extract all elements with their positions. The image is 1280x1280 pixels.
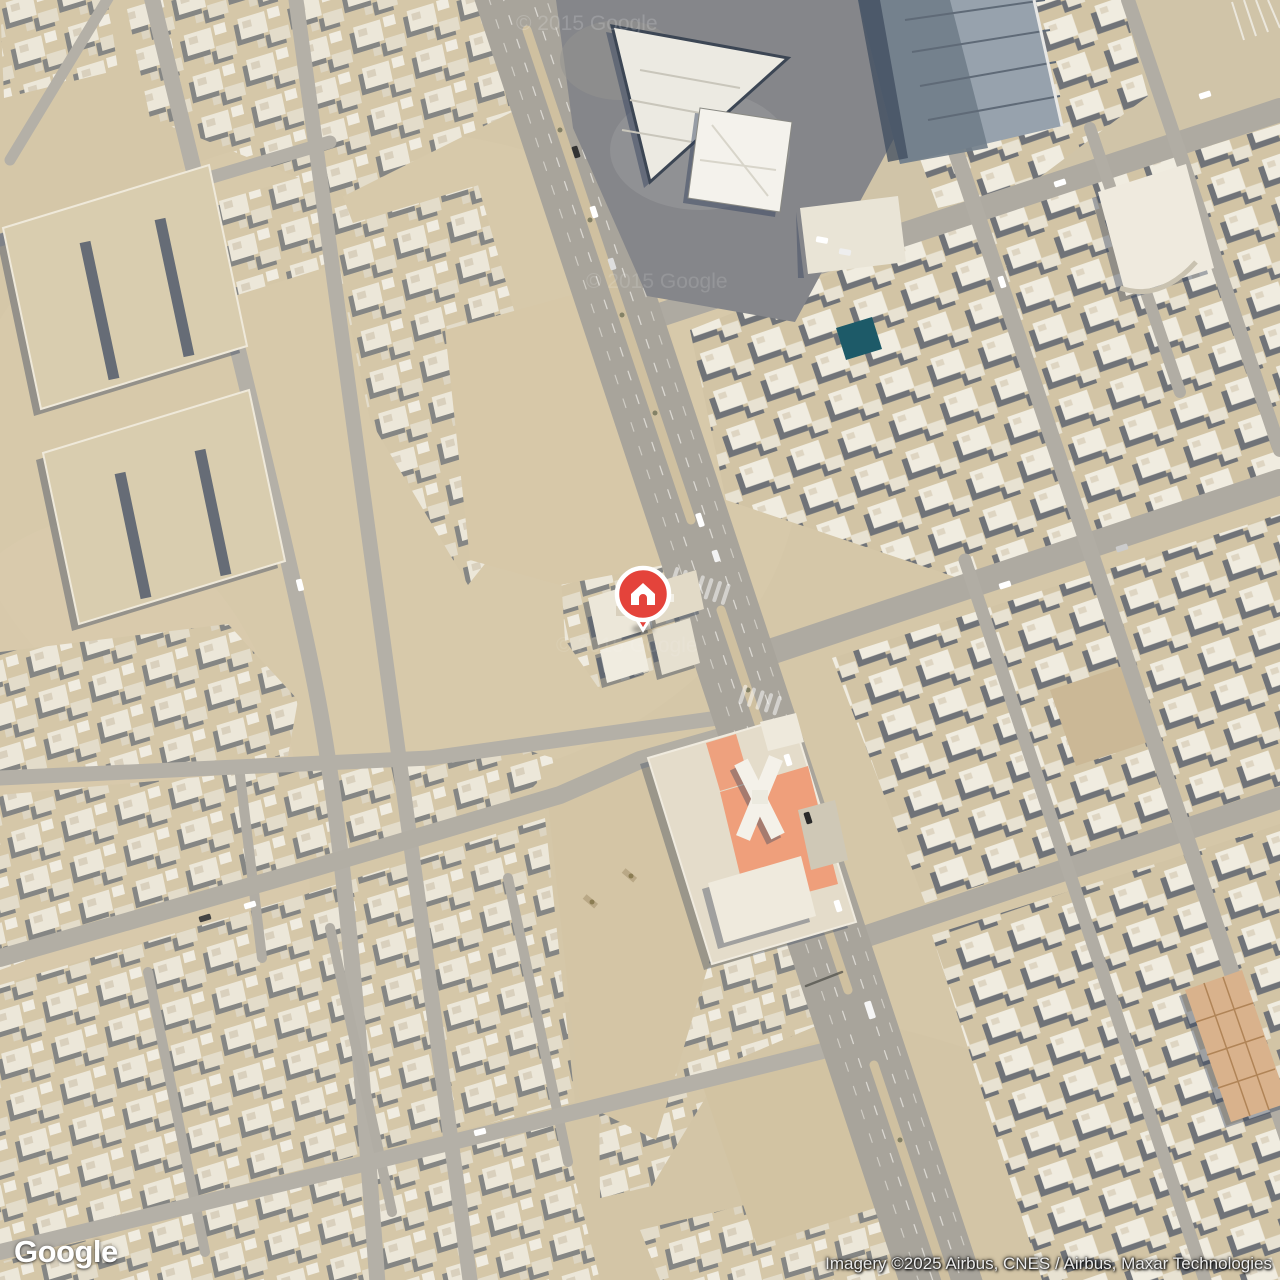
imagery-attribution: Imagery ©2025 Airbus, CNES / Airbus, Max… (825, 1254, 1272, 1274)
satellite-imagery: © 2015 Google © 2015 Google © 2015 Googl… (0, 0, 1280, 1280)
imagery-watermark: © 2015 Google (556, 634, 698, 657)
imagery-watermark: © 2015 Google (516, 12, 658, 35)
imagery-watermark: © 2015 Google (586, 270, 728, 293)
map-viewport[interactable]: © 2015 Google © 2015 Google © 2015 Googl… (0, 0, 1280, 1280)
google-logo[interactable]: Google (14, 1234, 118, 1270)
